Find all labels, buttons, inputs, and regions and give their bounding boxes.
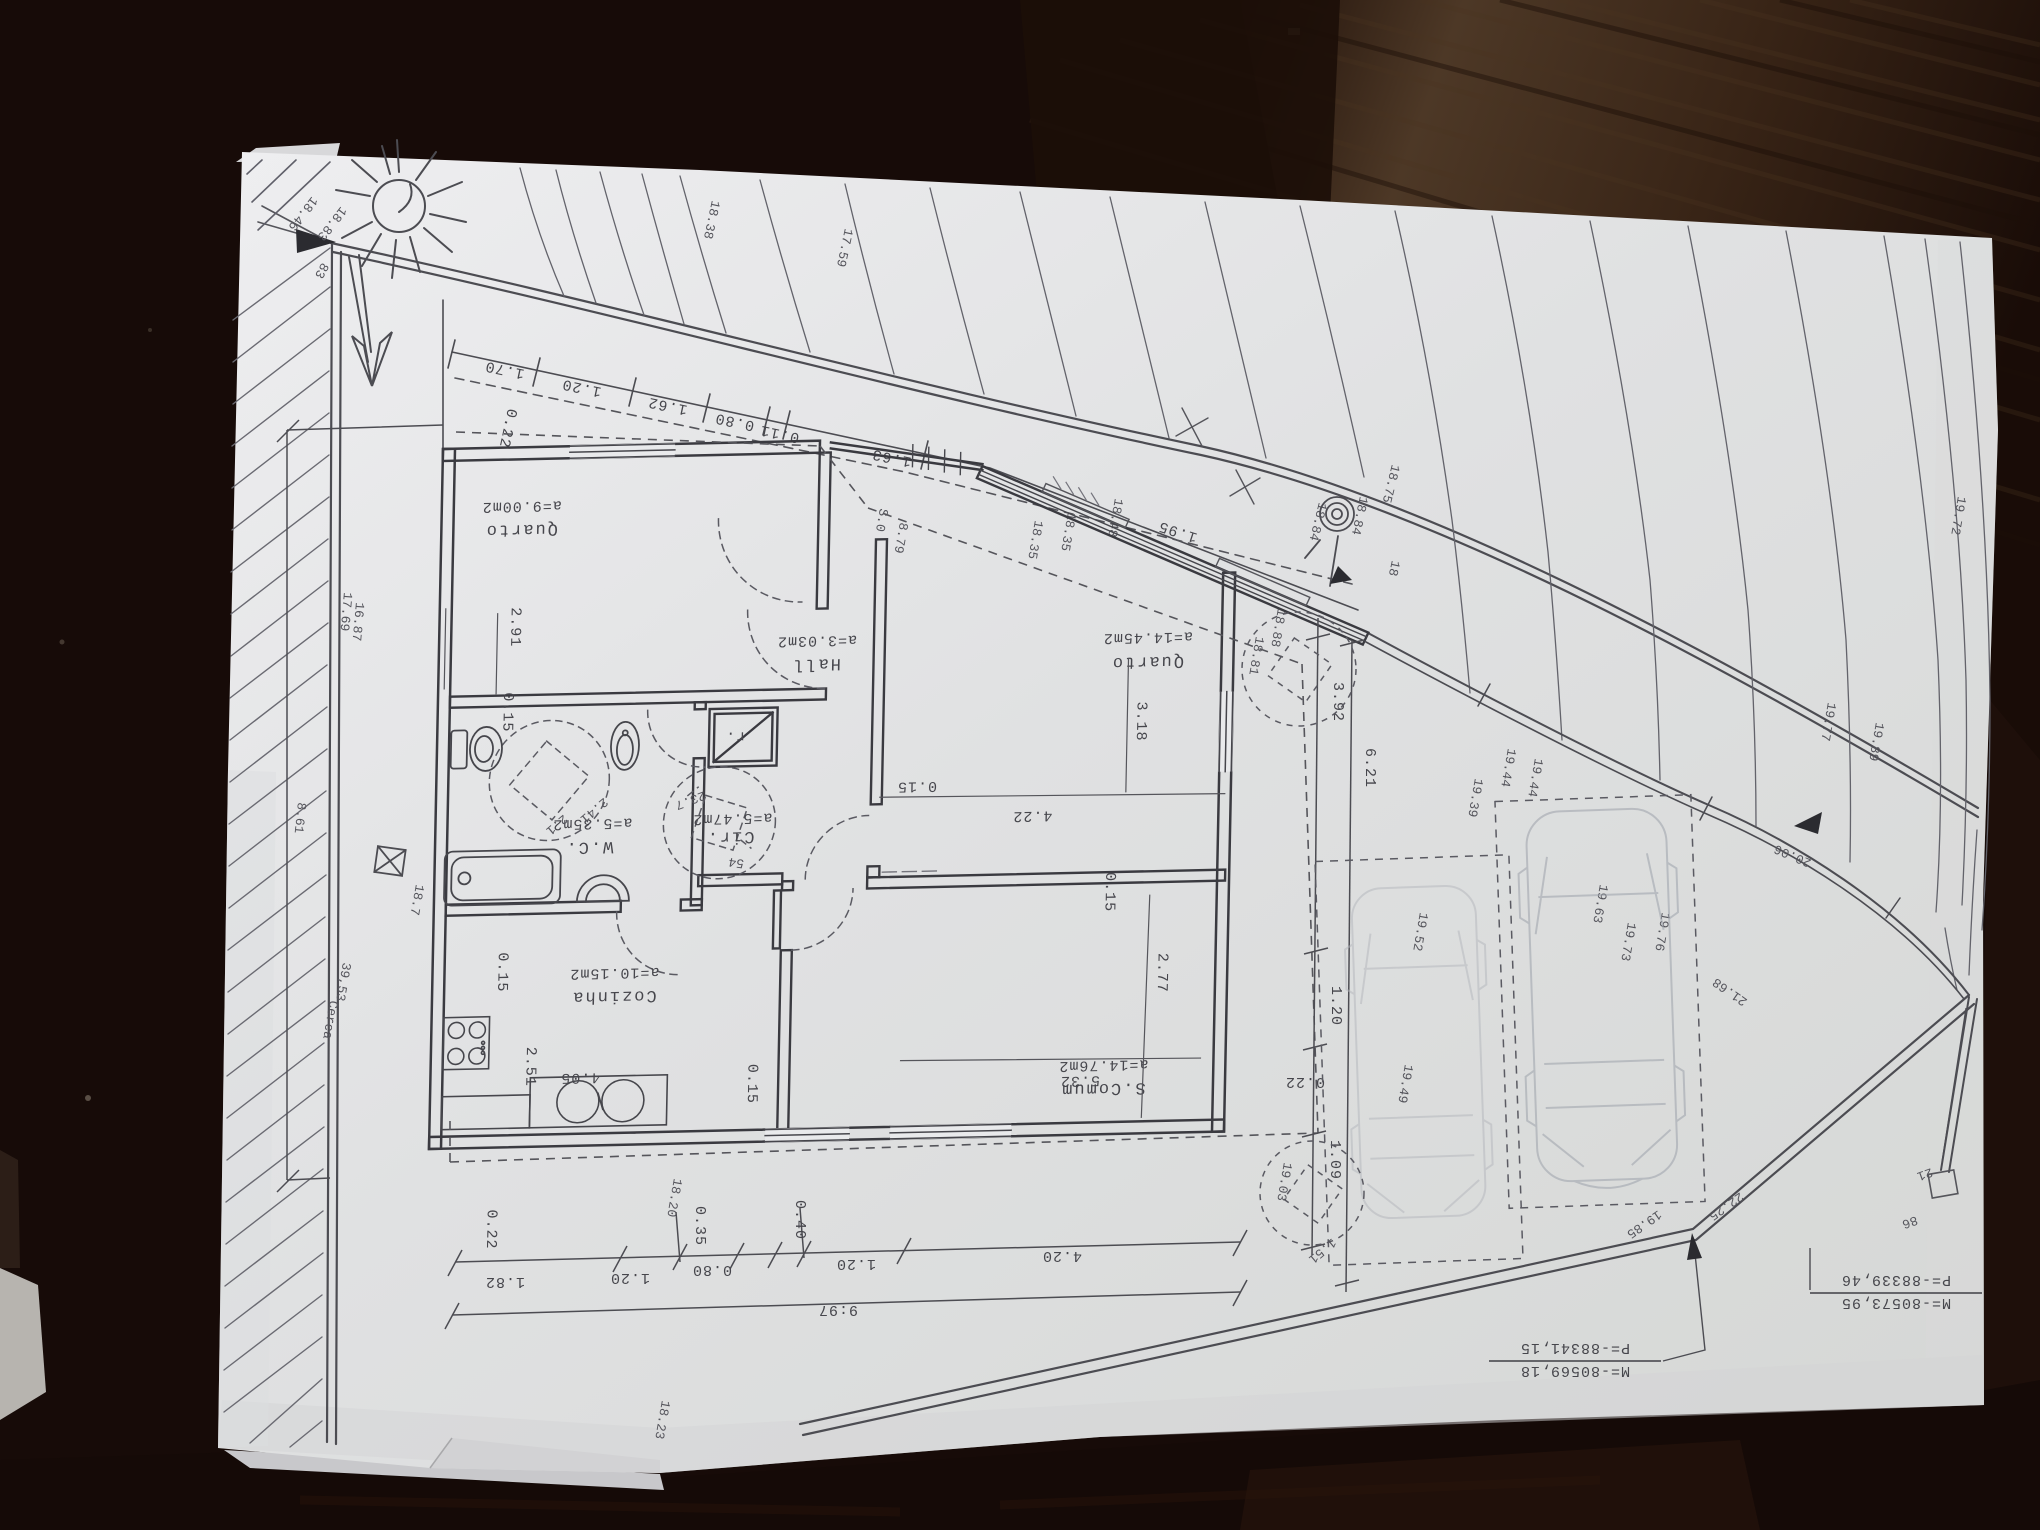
svg-text:0.22: 0.22 — [1285, 1073, 1325, 1090]
svg-text:5.32: 5.32 — [1060, 1071, 1100, 1089]
svg-text:0.15: 0.15 — [743, 1064, 761, 1104]
svg-text:2.91: 2.91 — [506, 607, 524, 647]
svg-text:a=3.03m2: a=3.03m2 — [777, 631, 857, 650]
svg-text:0.35: 0.35 — [691, 1206, 708, 1246]
svg-text:4.05: 4.05 — [560, 1068, 600, 1086]
svg-text:Quarto: Quarto — [485, 518, 559, 539]
svg-text:2.77: 2.77 — [1153, 953, 1171, 993]
svg-text:P=-88339,46: P=-88339,46 — [1841, 1271, 1951, 1288]
svg-text:1.20: 1.20 — [610, 1269, 650, 1286]
svg-text:3.92: 3.92 — [1329, 682, 1346, 722]
svg-text:0.15: 0.15 — [493, 952, 511, 992]
svg-text:0.40: 0.40 — [791, 1200, 808, 1240]
svg-text:Hall: Hall — [792, 653, 841, 673]
svg-text:Cir.: Cir. — [706, 826, 755, 846]
svg-text:1.20: 1.20 — [836, 1255, 876, 1272]
svg-text:W.C.: W.C. — [564, 836, 613, 856]
svg-text:0.22: 0.22 — [482, 1209, 500, 1249]
svg-text:0.80: 0.80 — [692, 1261, 732, 1278]
svg-text:a=14.45m2: a=14.45m2 — [1103, 627, 1193, 646]
svg-text:4.22: 4.22 — [1012, 806, 1052, 824]
svg-text:a=10.15m2: a=10.15m2 — [569, 963, 659, 982]
svg-text:M=-80569,18: M=-80569,18 — [1520, 1362, 1630, 1379]
svg-text:0.15: 0.15 — [1100, 872, 1118, 912]
svg-text:1.20: 1.20 — [1327, 986, 1344, 1026]
svg-text:9:97: 9:97 — [818, 1301, 858, 1318]
svg-text:Cozinha: Cozinha — [571, 985, 657, 1006]
svg-text:0.15: 0.15 — [897, 777, 937, 795]
svg-text:2.51: 2.51 — [521, 1047, 539, 1087]
svg-text:a=9.00m2: a=9.00m2 — [482, 496, 562, 515]
svg-text:P=-88341,15: P=-88341,15 — [1520, 1339, 1630, 1356]
svg-text:a=5.47m2: a=5.47m2 — [692, 809, 772, 828]
svg-text:54: 54 — [727, 854, 745, 871]
svg-text:1.82: 1.82 — [485, 1273, 525, 1290]
svg-text:4.20: 4.20 — [1042, 1247, 1082, 1264]
svg-text:18: 18 — [1385, 559, 1403, 577]
svg-text:3.18: 3.18 — [1132, 701, 1150, 741]
svg-text:6.21: 6.21 — [1361, 748, 1378, 788]
svg-text:Quarto: Quarto — [1111, 651, 1185, 672]
svg-text:0.15: 0.15 — [498, 692, 516, 732]
svg-text:r.: r. — [725, 727, 745, 744]
svg-text:M=-80573,95: M=-80573,95 — [1841, 1294, 1951, 1311]
